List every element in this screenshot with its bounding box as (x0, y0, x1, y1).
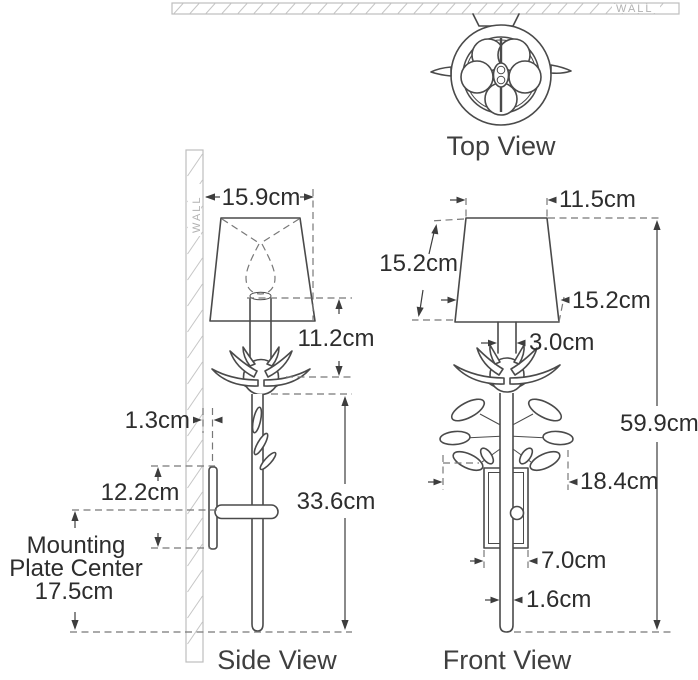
arrowhead (431, 224, 438, 234)
hatch-line (188, 518, 203, 540)
ext-line (430, 219, 464, 221)
arrowhead (457, 197, 466, 204)
top-view-label: Top View (446, 131, 556, 161)
wall-hatch-top (174, 4, 663, 14)
sconce-dimension-diagram: WALL Top View WALL (0, 0, 698, 680)
arrowhead (417, 307, 424, 317)
hatch-line (188, 570, 203, 592)
hatch-line (302, 4, 311, 14)
hatch-line (188, 622, 203, 644)
arrowhead (154, 537, 161, 547)
diagram-canvas: WALL Top View WALL (0, 0, 698, 680)
arrowhead (561, 297, 570, 304)
wall-label-top: WALL (616, 3, 654, 15)
dim-shade-to-flower: 11.2cm (298, 325, 375, 352)
hatch-line (188, 154, 203, 176)
candle-front (498, 322, 516, 353)
arrowhead (154, 467, 161, 477)
hatch-line (188, 544, 203, 566)
arrowhead (529, 558, 538, 565)
hatch-line (188, 258, 203, 280)
hatch-line (430, 4, 439, 14)
leaf-front-r2 (542, 430, 573, 446)
arrowhead (448, 297, 457, 304)
hatch-line (238, 4, 247, 14)
shade-side (210, 218, 315, 321)
arrowhead (488, 340, 497, 347)
hatch-line (188, 492, 203, 514)
arrowhead (514, 597, 523, 604)
dim-candle-width: 3.0cm (529, 329, 594, 356)
arrowhead (335, 299, 342, 309)
dim-shade-depth: 15.9cm (222, 184, 301, 211)
hatch-line (188, 440, 203, 462)
hatch-line (188, 596, 203, 618)
dim-backplate-height: 12.2cm (101, 479, 180, 506)
hatch-line (188, 466, 203, 488)
front-view-label: Front View (443, 645, 572, 675)
arrowhead (434, 479, 443, 486)
front-view: 11.5cm 15.2cm 15.2cm 3.0cm 18.4cm (379, 186, 698, 675)
hatch-line (206, 4, 215, 14)
hatch-line (366, 4, 375, 14)
hatch-line (558, 4, 567, 14)
arrowhead (569, 479, 578, 486)
dim-shade-slant-height: 15.2cm (379, 250, 458, 277)
arrowhead (653, 620, 660, 630)
wall-label-side: WALL (191, 195, 203, 233)
hatch-line (478, 4, 487, 14)
hatch-line (526, 4, 535, 14)
hatch-line (190, 4, 199, 14)
hatch-line (222, 4, 231, 14)
arrowhead (653, 220, 660, 230)
side-view: WALL 15.9cm (9, 150, 375, 675)
hatch-line (590, 4, 599, 14)
arrowhead (335, 366, 342, 376)
arrowhead (548, 197, 557, 204)
hatch-line (542, 4, 551, 14)
arrowhead (341, 620, 348, 630)
hatch-line (350, 4, 359, 14)
arrowhead (341, 396, 348, 406)
arrowhead (71, 511, 78, 521)
hatch-line (334, 4, 343, 14)
arrowhead (193, 417, 202, 424)
hatch-line (188, 310, 203, 332)
hatch-line (270, 4, 279, 14)
hatch-line (174, 4, 183, 14)
screw-hole (511, 507, 524, 520)
dim-stem-width: 1.6cm (526, 586, 591, 613)
dim-leaf-span: 18.4cm (580, 468, 659, 495)
side-leaf-right-top (551, 65, 571, 73)
leaf-front-l2 (439, 430, 470, 446)
dim-shade-bottom-width: 15.2cm (572, 287, 651, 314)
dim-shade-top-width: 11.5cm (559, 186, 636, 213)
wall-strip-top (172, 3, 679, 14)
arrowhead (517, 340, 526, 347)
hatch-line (382, 4, 391, 14)
side-leaf-left-top (431, 67, 451, 76)
top-view: WALL Top View (172, 3, 679, 161)
mounting-bracket-top (473, 14, 519, 26)
leaf-front-r1 (526, 395, 565, 425)
hatch-line (254, 4, 263, 14)
dim-mounting-line3: 17.5cm (35, 578, 114, 605)
hatch-line (414, 4, 423, 14)
dim-wall-gap: 1.3cm (125, 407, 190, 434)
arrowhead (205, 193, 215, 200)
hatch-line (188, 336, 203, 358)
hatch-line (462, 4, 471, 14)
arrowhead (214, 417, 223, 424)
arrowhead (71, 620, 78, 630)
hatch-line (286, 4, 295, 14)
leaf-front-l1 (449, 395, 488, 425)
hatch-line (188, 284, 203, 306)
shade-front (455, 218, 559, 322)
hatch-line (446, 4, 455, 14)
dim-backplate-width: 7.0cm (541, 547, 606, 574)
hatch-line (318, 4, 327, 14)
side-view-label: Side View (217, 645, 337, 675)
dim-overall-height: 59.9cm (620, 410, 698, 437)
hatch-line (188, 362, 203, 384)
mounting-arm-side (215, 505, 278, 519)
hatch-line (494, 4, 503, 14)
dim-stem-height: 33.6cm (297, 488, 376, 515)
arrowhead (475, 558, 484, 565)
arrowhead (491, 597, 500, 604)
hatch-line (398, 4, 407, 14)
hatch-line (574, 4, 583, 14)
hatch-line (510, 4, 519, 14)
